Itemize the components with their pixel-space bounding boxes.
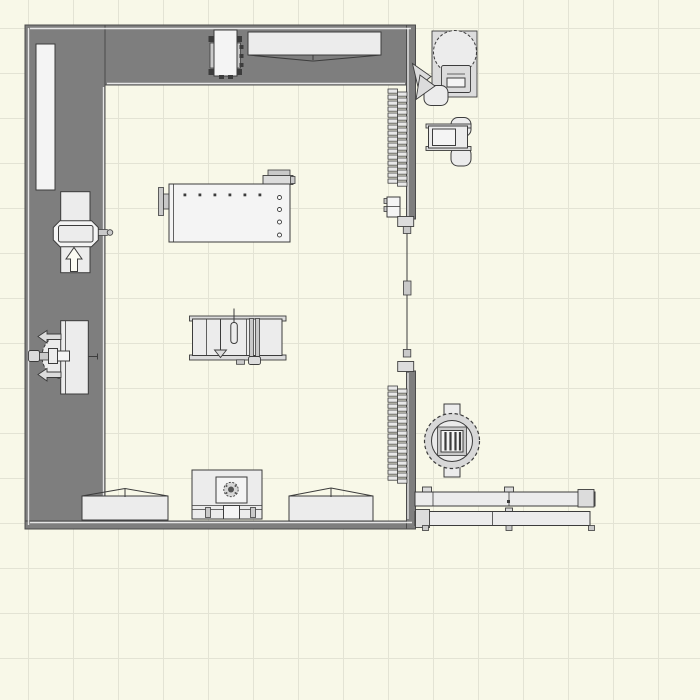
rack-pin (507, 500, 510, 503)
cart-knob (240, 54, 244, 58)
rack-end-block-right (578, 490, 594, 508)
coil-tooth (388, 464, 398, 468)
walls (25, 25, 416, 529)
coil-tooth (388, 470, 398, 474)
planer-bed (433, 129, 456, 146)
coil-tooth (398, 176, 408, 180)
coil-tooth (388, 155, 398, 159)
coil-tooth (398, 98, 408, 102)
rack-foot (589, 526, 595, 531)
coil-tooth (388, 179, 398, 183)
coil-tooth (388, 410, 398, 414)
coil-tooth (388, 137, 398, 141)
rack-rail-bottom (415, 512, 590, 526)
cart-foot (228, 75, 233, 79)
air-compressor[interactable] (413, 31, 478, 106)
vise-left-jaw (159, 188, 164, 216)
saw-head (58, 351, 70, 361)
rack-rail-top (415, 492, 595, 506)
coil-tooth (398, 152, 408, 156)
coil-tooth (388, 404, 398, 408)
compressor-motor-plate (447, 78, 465, 87)
workbench-surface (248, 32, 381, 55)
coil-tooth (388, 440, 398, 444)
coil-tooth (398, 122, 408, 126)
drillpress-notch (224, 506, 240, 520)
rip-fence (256, 319, 260, 357)
saw-motor (29, 351, 40, 362)
door-latch (404, 281, 412, 295)
coil-tooth (388, 95, 398, 99)
coil-tooth (388, 428, 398, 432)
coil-tooth (398, 449, 408, 453)
jointer-handle-knob (107, 230, 113, 236)
coil-door-section-upper[interactable] (388, 89, 407, 186)
clamp-rack[interactable] (415, 487, 595, 531)
coil-tooth (398, 140, 408, 144)
shop-vacuum[interactable] (425, 404, 480, 477)
panel-body (387, 197, 400, 217)
coil-tooth (388, 386, 398, 390)
workbench-bottom-right[interactable] (289, 488, 373, 521)
workbench-main[interactable] (159, 170, 296, 242)
cart-rail (210, 43, 214, 68)
vise-top-body (263, 176, 293, 185)
coil-tooth (398, 164, 408, 168)
fence-clamp (249, 357, 261, 365)
floorplan-canvas (0, 0, 700, 700)
jointer-cutter-inner (59, 226, 94, 243)
coil-tooth (398, 467, 408, 471)
coil-door-section-lower[interactable] (388, 386, 407, 483)
coil-tooth (388, 392, 398, 396)
coil-tooth (398, 116, 408, 120)
coil-tooth (388, 173, 398, 177)
vise-left-body (164, 194, 170, 209)
wall-shelf[interactable] (36, 44, 55, 190)
coil-tooth (398, 407, 408, 411)
coil-tooth (388, 149, 398, 153)
vise-top-knob (291, 177, 296, 184)
saw-blade (231, 323, 238, 344)
drillpress-post (251, 508, 256, 518)
coil-tooth (388, 452, 398, 456)
coil-tooth (398, 170, 408, 174)
coil-tooth (398, 419, 408, 423)
saw-carriage (40, 353, 49, 361)
coil-tooth (398, 134, 408, 138)
coil-tooth (398, 92, 408, 96)
coil-tooth (398, 158, 408, 162)
coil-tooth (388, 476, 398, 480)
coil-tooth (388, 131, 398, 135)
cart-foot (219, 75, 224, 79)
rolling-tool-cart[interactable] (209, 30, 244, 79)
cart-body (214, 30, 237, 76)
sliding-door[interactable] (398, 217, 414, 372)
door-stem-bottom (403, 350, 411, 358)
saw-column (49, 349, 58, 364)
coil-tooth (388, 458, 398, 462)
cart-knob (240, 45, 244, 49)
workbench-surface (82, 496, 168, 520)
coil-tooth (398, 401, 408, 405)
coil-tooth (398, 104, 408, 108)
coil-tooth (398, 455, 408, 459)
table-saw[interactable] (190, 309, 287, 365)
coil-tooth (388, 167, 398, 171)
coil-tooth (398, 110, 408, 114)
door-cap-top (398, 217, 414, 227)
workbench-surface (289, 496, 373, 521)
rack-end-block-left (416, 510, 430, 528)
coil-tooth (398, 182, 408, 186)
small-panel-box[interactable] (384, 197, 400, 217)
coil-tooth (398, 437, 408, 441)
rip-fence-rail (250, 319, 254, 357)
door-stem-top (403, 226, 411, 234)
floorplan-drawing (0, 0, 700, 700)
coil-tooth (398, 389, 408, 393)
coil-tooth (388, 398, 398, 402)
coil-tooth (398, 473, 408, 477)
workbench-surface (169, 184, 290, 242)
coil-tooth (398, 443, 408, 447)
coil-tooth (388, 89, 398, 93)
coil-tooth (398, 431, 408, 435)
coil-tooth (388, 119, 398, 123)
drill-press[interactable] (192, 470, 262, 519)
coil-tooth (388, 416, 398, 420)
coil-tooth (388, 101, 398, 105)
rack-foot (423, 526, 429, 531)
cart-knob (240, 63, 244, 67)
coil-tooth (398, 425, 408, 429)
coil-tooth (398, 146, 408, 150)
drillpress-post (206, 508, 211, 518)
coil-tooth (388, 113, 398, 117)
coil-tooth (388, 161, 398, 165)
coil-tooth (388, 143, 398, 147)
tablesaw-tab (237, 360, 245, 365)
coil-tooth (398, 413, 408, 417)
coil-tooth (388, 107, 398, 111)
rack-foot (506, 526, 512, 531)
coil-tooth (388, 446, 398, 450)
coil-tooth (398, 395, 408, 399)
coil-tooth (388, 434, 398, 438)
coil-tooth (388, 422, 398, 426)
coil-tooth (398, 479, 408, 483)
benchtop-planer[interactable] (426, 118, 471, 167)
coil-tooth (398, 461, 408, 465)
door-cap-bottom (398, 362, 414, 372)
drill-chuck (228, 487, 234, 493)
coil-tooth (388, 125, 398, 129)
coil-tooth (398, 128, 408, 132)
